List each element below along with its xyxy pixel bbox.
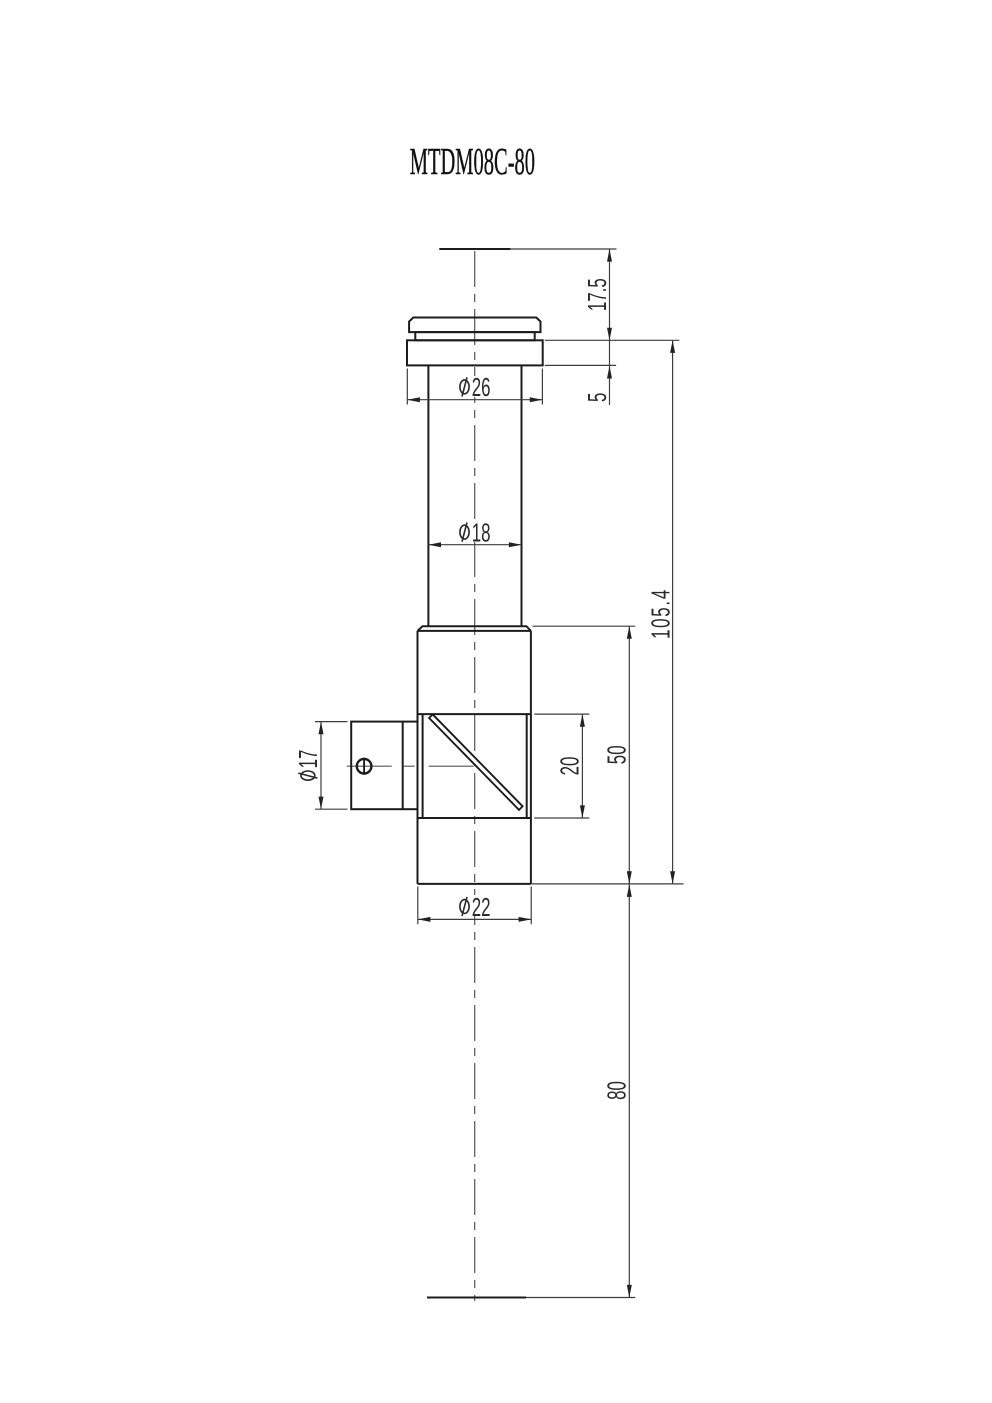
svg-text:17: 17 [293,750,323,769]
svg-text:50: 50 [602,745,632,764]
svg-text:22: 22 [472,892,491,922]
svg-text:105.4: 105.4 [646,588,676,639]
svg-text:20: 20 [555,757,585,776]
svg-text:MTDM08C-80: MTDM08C-80 [410,140,535,182]
svg-text:5: 5 [582,393,612,402]
svg-text:18: 18 [472,518,491,548]
svg-text:26: 26 [472,372,491,402]
svg-text:80: 80 [602,1081,632,1100]
svg-text:17.5: 17.5 [582,278,612,311]
